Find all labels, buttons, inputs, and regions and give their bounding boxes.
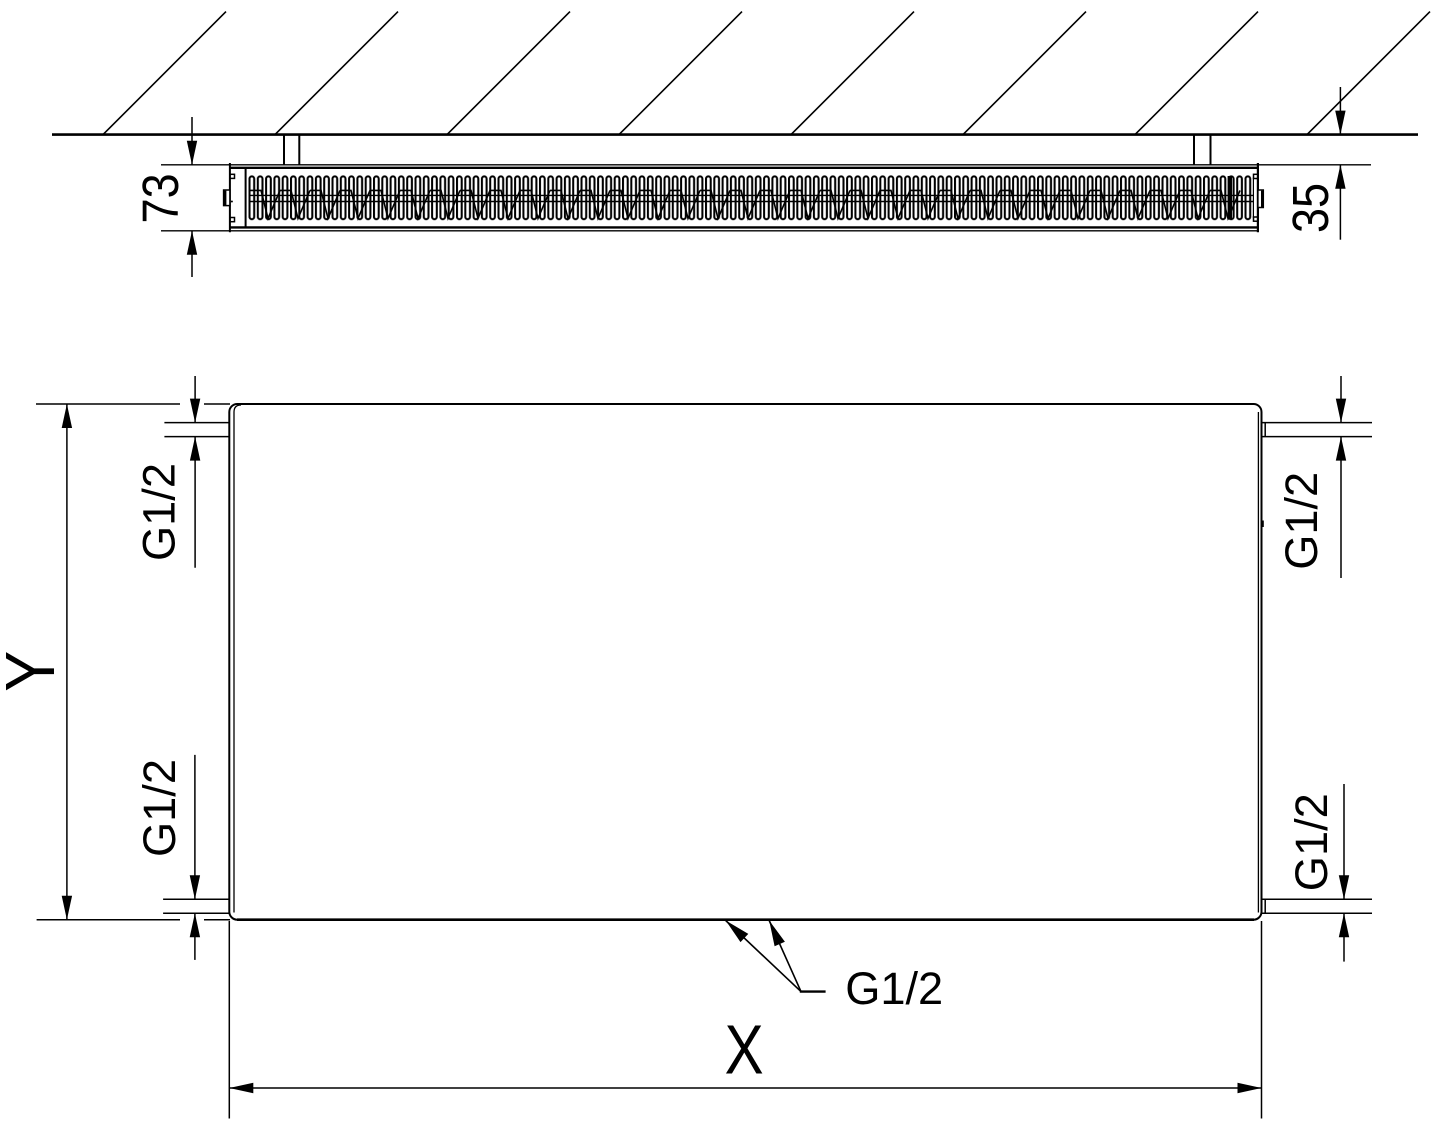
svg-text:Y: Y	[0, 651, 69, 692]
svg-text:G1/2: G1/2	[1286, 793, 1337, 891]
svg-text:G1/2: G1/2	[134, 759, 185, 857]
svg-text:73: 73	[132, 173, 189, 223]
svg-text:G1/2: G1/2	[134, 463, 185, 561]
svg-text:G1/2: G1/2	[845, 963, 943, 1014]
svg-text:G1/2: G1/2	[1276, 472, 1327, 570]
svg-text:X: X	[725, 1011, 764, 1089]
svg-text:35: 35	[1282, 183, 1339, 233]
